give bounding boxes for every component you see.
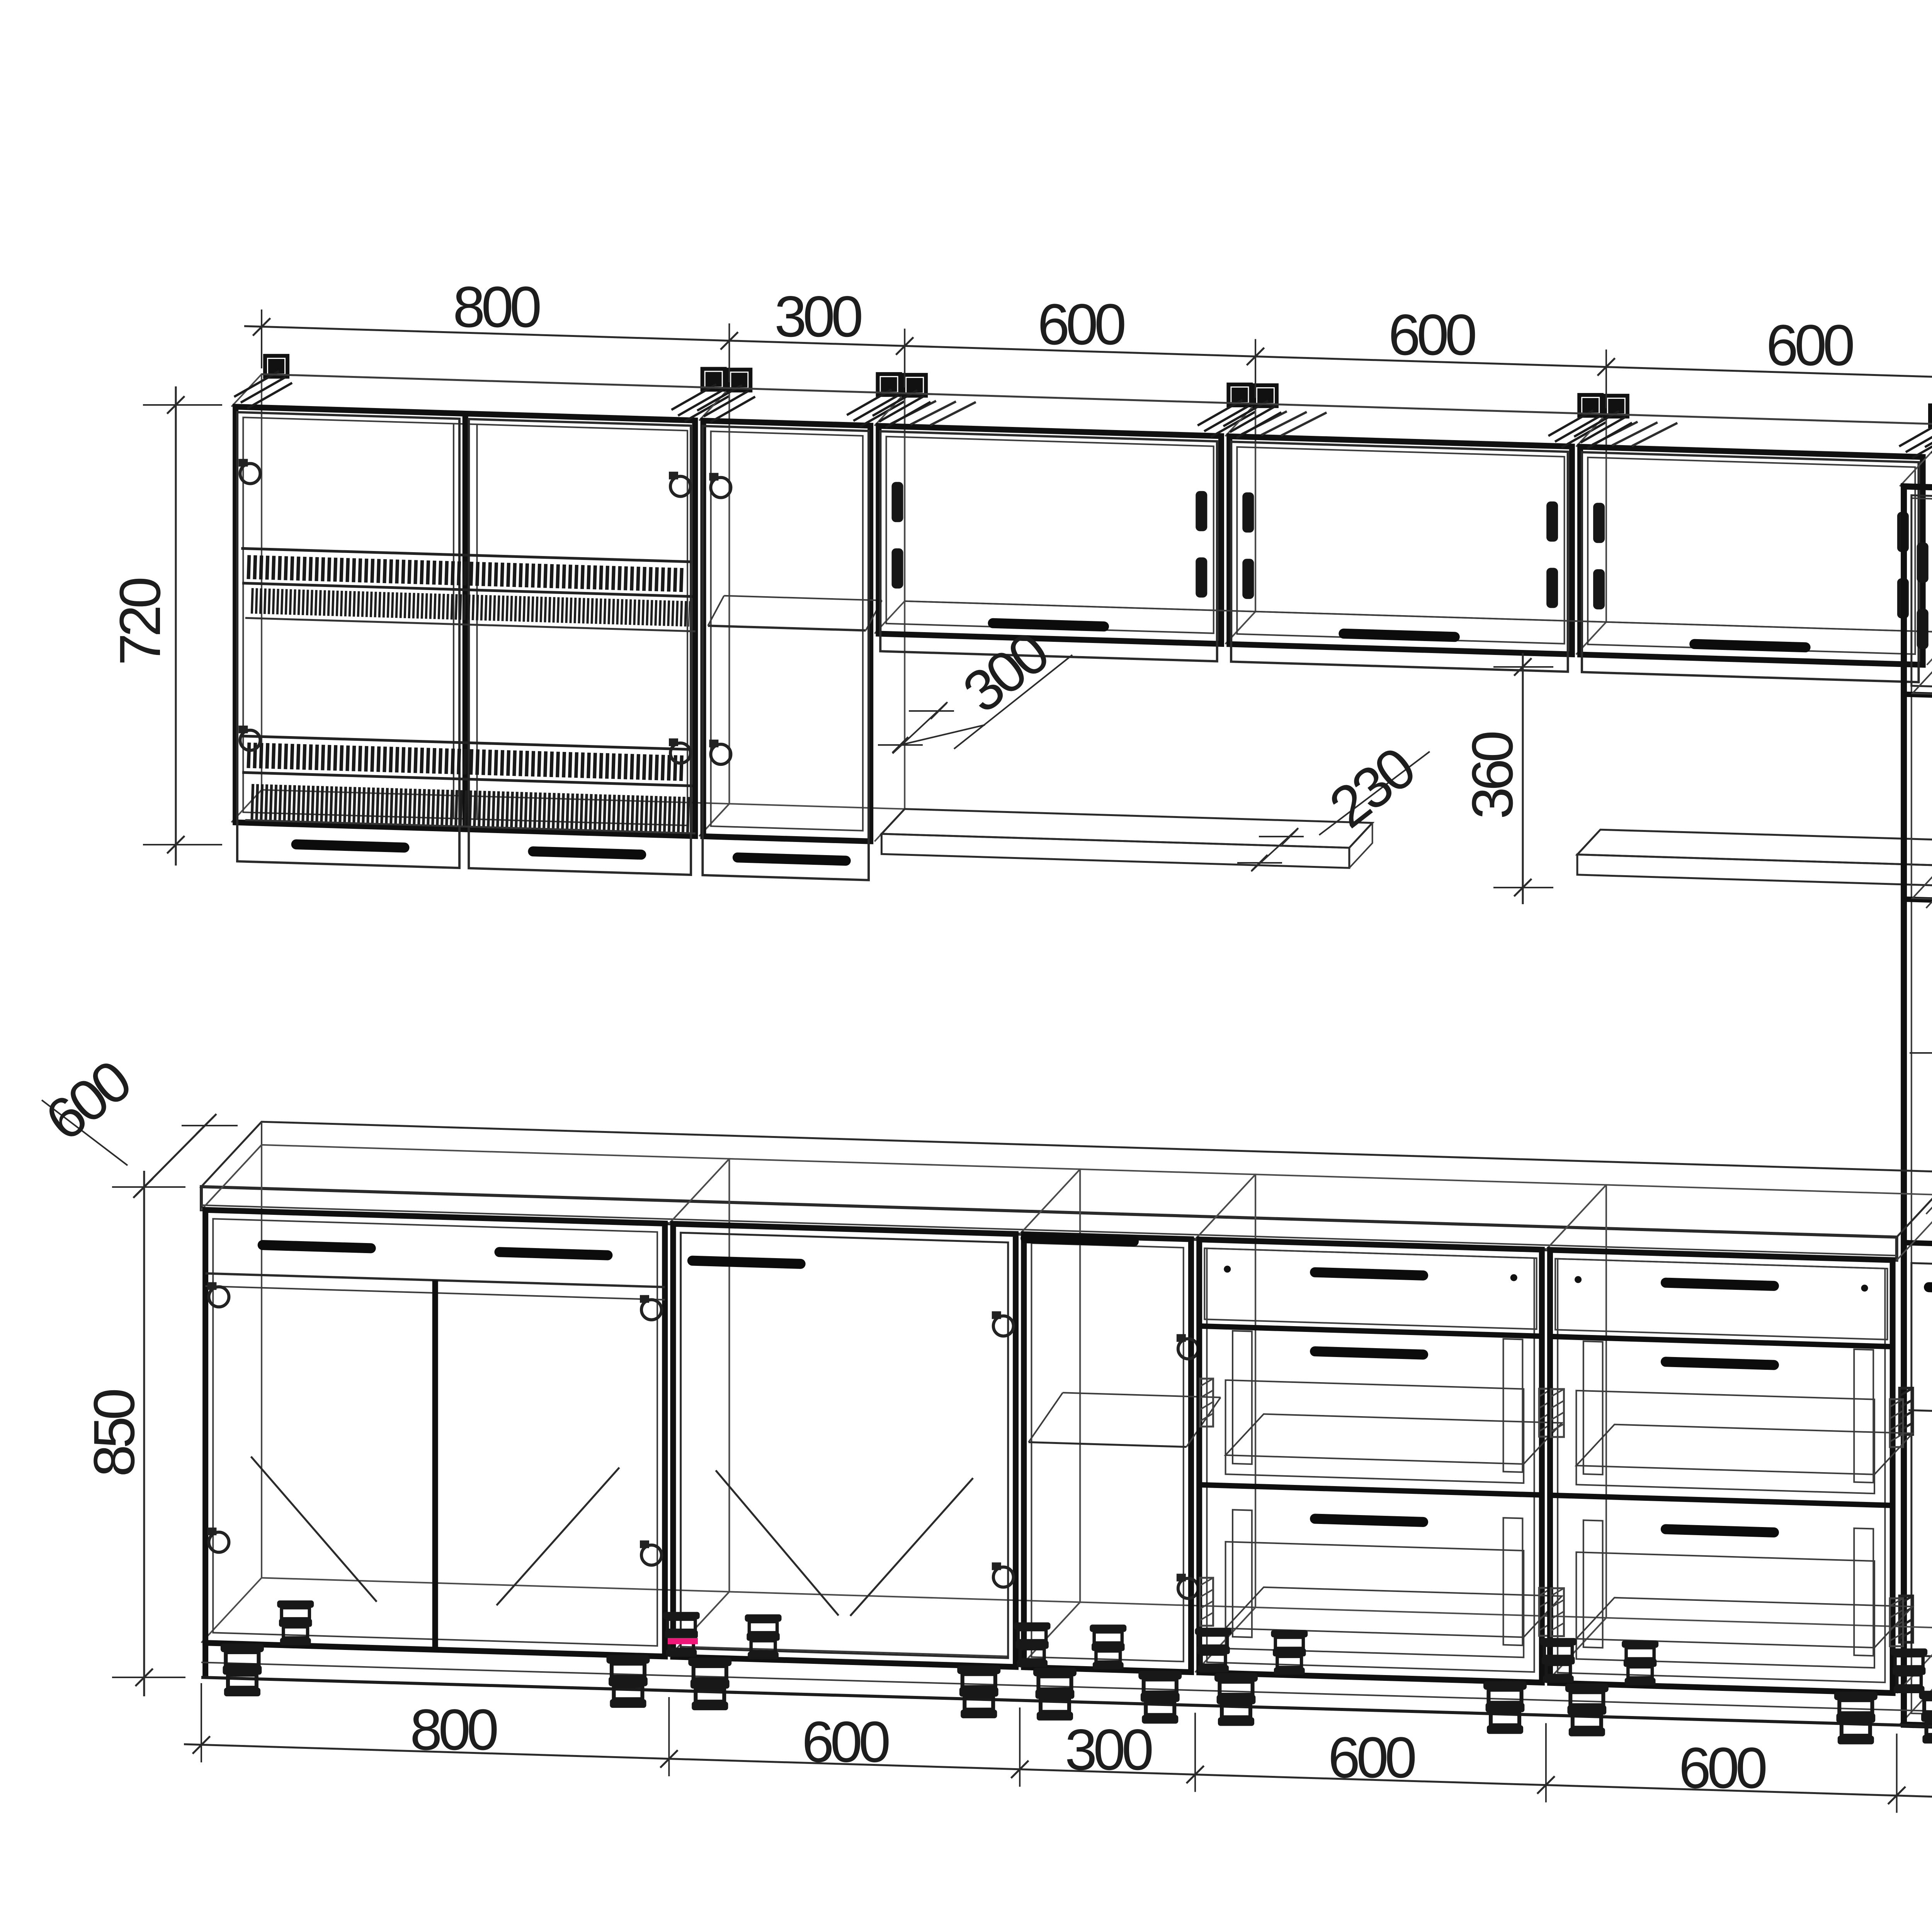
- svg-text:600: 600: [802, 1709, 889, 1774]
- svg-text:800: 800: [410, 1697, 497, 1762]
- svg-text:600: 600: [1037, 292, 1124, 357]
- svg-text:600: 600: [1328, 1725, 1415, 1790]
- svg-text:720: 720: [107, 578, 172, 665]
- svg-text:360: 360: [1460, 732, 1525, 819]
- svg-text:300: 300: [1065, 1717, 1152, 1782]
- svg-text:600: 600: [1679, 1735, 1766, 1800]
- svg-text:300: 300: [774, 284, 861, 349]
- svg-text:600: 600: [1766, 313, 1853, 378]
- svg-text:800: 800: [453, 274, 540, 339]
- svg-text:600: 600: [1388, 302, 1475, 367]
- svg-text:850: 850: [82, 1390, 146, 1477]
